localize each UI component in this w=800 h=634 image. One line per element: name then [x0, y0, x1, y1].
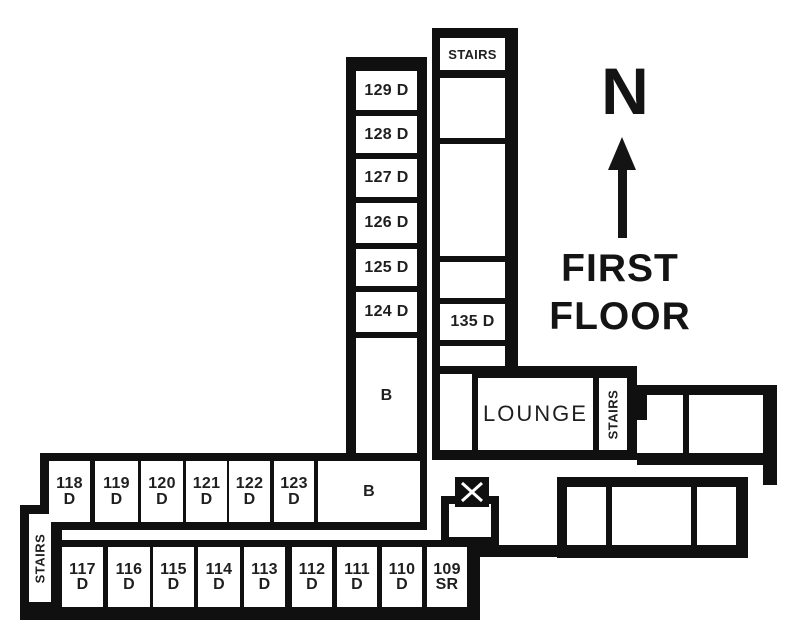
unlabeled-room	[440, 262, 505, 298]
x-marker	[455, 477, 489, 507]
stairs-east: STAIRS	[599, 378, 627, 450]
unlabeled-room	[449, 504, 491, 537]
room-125: 125 D	[356, 249, 417, 286]
room-114: 114D	[198, 547, 240, 607]
room-128: 128 D	[356, 116, 417, 153]
room-111: 111D	[337, 547, 377, 607]
room-127: 127 D	[356, 159, 417, 197]
bath-north: B	[356, 338, 417, 453]
room-116: 116D	[108, 547, 150, 607]
north-label: N	[585, 58, 665, 124]
unlabeled-room	[567, 487, 606, 545]
unlabeled-room	[440, 346, 505, 366]
unlabeled-room	[612, 487, 691, 545]
room-121: 121D	[186, 461, 227, 522]
floor-plan: 129 D 128 D 127 D 126 D 125 D 124 D B ST…	[0, 0, 800, 634]
x-icon	[455, 477, 489, 507]
room-113: 113D	[244, 547, 285, 607]
floor-title-line1: FIRST	[530, 249, 710, 288]
wall-segment	[637, 395, 647, 420]
unlabeled-room	[440, 78, 505, 138]
room-124: 124 D	[356, 292, 417, 332]
room-129: 129 D	[356, 71, 417, 110]
unlabeled-room	[440, 374, 472, 450]
stairs-west: STAIRS	[29, 514, 51, 602]
north-arrow-shaft	[618, 167, 627, 238]
room-117: 117D	[62, 547, 103, 607]
room-118: 118D	[49, 461, 90, 522]
room-126: 126 D	[356, 203, 417, 243]
unlabeled-room	[697, 487, 736, 545]
room-120: 120D	[141, 461, 183, 522]
stairs-north: STAIRS	[440, 38, 505, 70]
room-119: 119D	[95, 461, 138, 522]
lounge: LOUNGE	[478, 378, 593, 450]
bath-west: B	[318, 461, 420, 522]
room-115: 115D	[153, 547, 194, 607]
floor-title-line2: FLOOR	[530, 297, 710, 336]
room-112: 112D	[292, 547, 332, 607]
room-122: 122D	[229, 461, 270, 522]
room-135: 135 D	[440, 304, 505, 340]
room-123: 123D	[274, 461, 314, 522]
north-arrow-icon	[608, 137, 636, 170]
room-109: 109SR	[427, 547, 467, 607]
unlabeled-room	[440, 144, 505, 256]
unlabeled-room	[689, 395, 763, 453]
room-110: 110D	[382, 547, 422, 607]
wall-segment	[763, 465, 777, 485]
